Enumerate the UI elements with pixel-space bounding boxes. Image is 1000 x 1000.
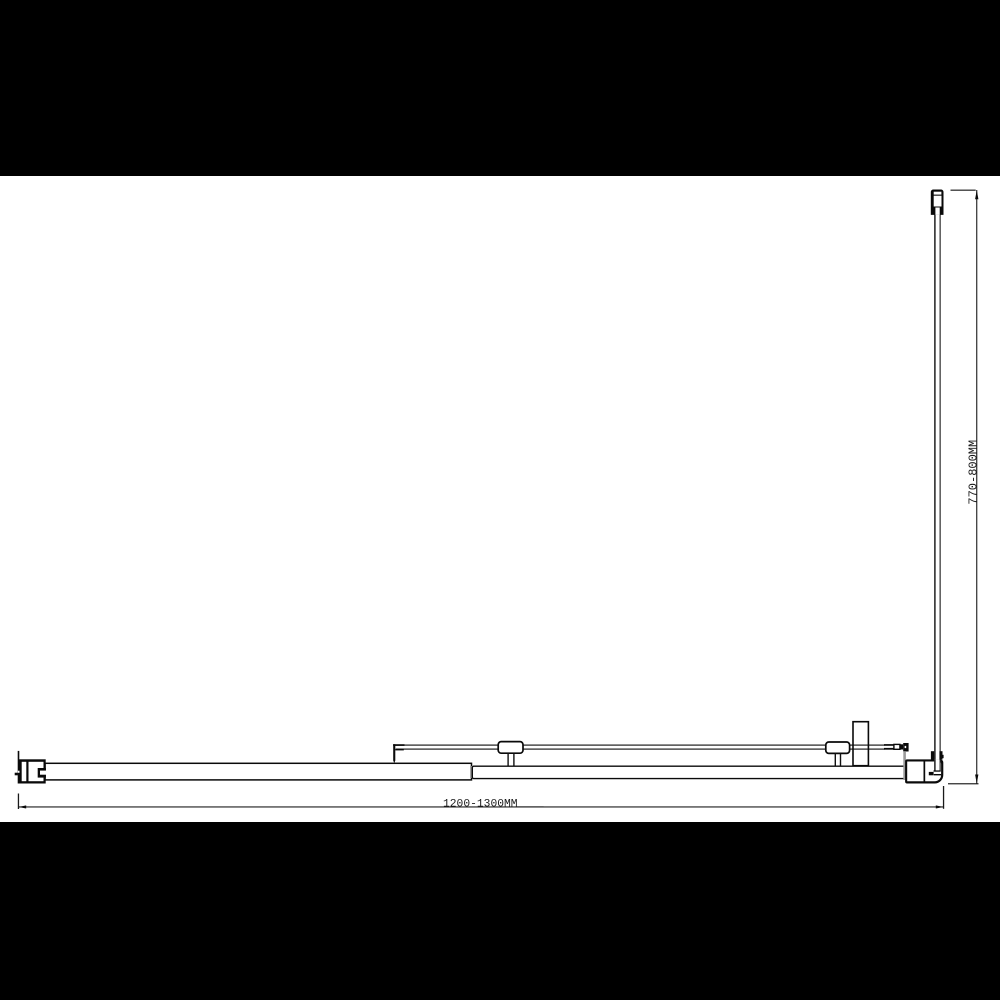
svg-text:770-800MM: 770-800MM — [967, 440, 981, 505]
svg-text:1200-1300MM: 1200-1300MM — [443, 798, 518, 810]
